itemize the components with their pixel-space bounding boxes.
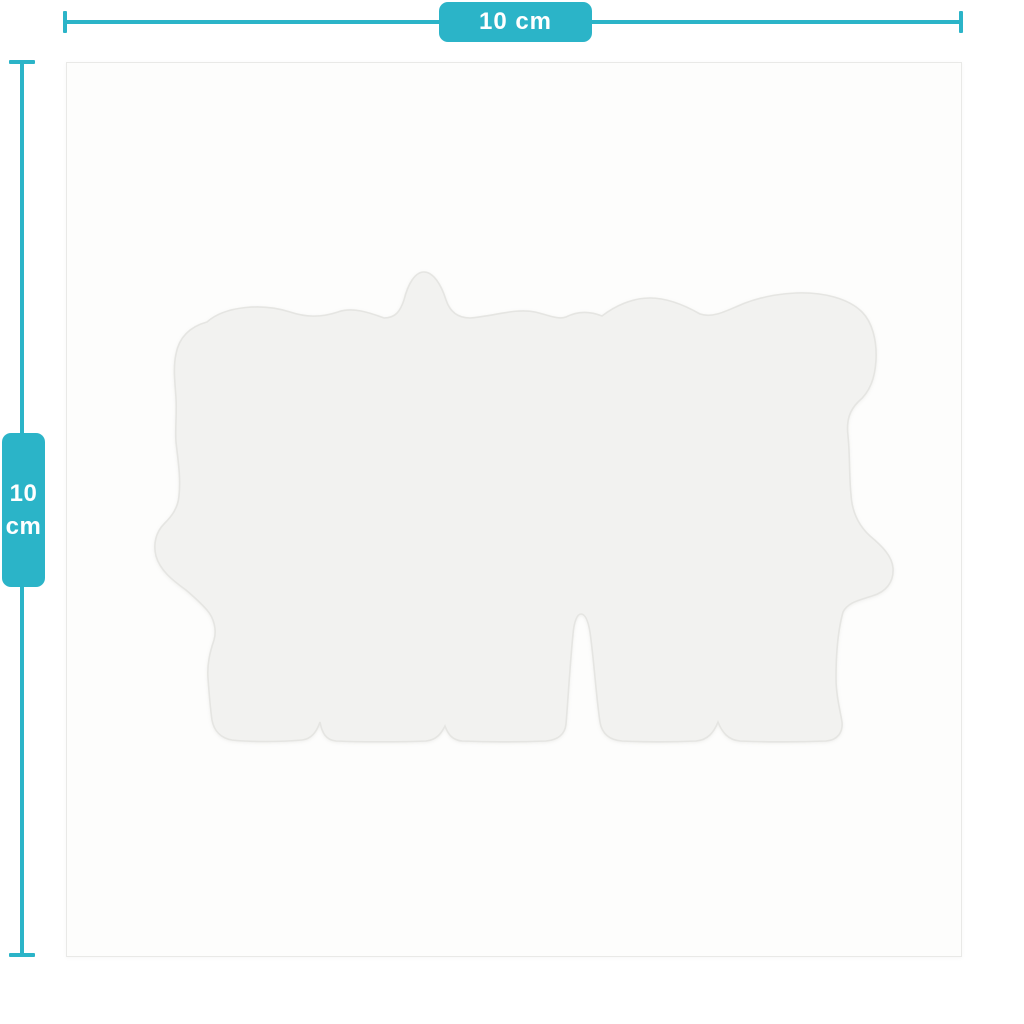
width-ruler-endcap-left — [63, 11, 67, 33]
height-dimension-label: 10 cm — [2, 433, 45, 587]
product-sheet — [66, 62, 962, 957]
width-ruler-endcap-right — [959, 11, 963, 33]
dimension-diagram: 10 cm 10 cm — [0, 0, 1024, 1024]
height-dimension-unit: cm — [6, 510, 42, 543]
width-dimension-text: 10 cm — [479, 8, 552, 36]
height-ruler-endcap-bottom — [9, 953, 35, 957]
height-dimension-value: 10 — [10, 477, 38, 510]
width-dimension-label: 10 cm — [439, 2, 592, 42]
height-ruler-endcap-top — [9, 60, 35, 64]
